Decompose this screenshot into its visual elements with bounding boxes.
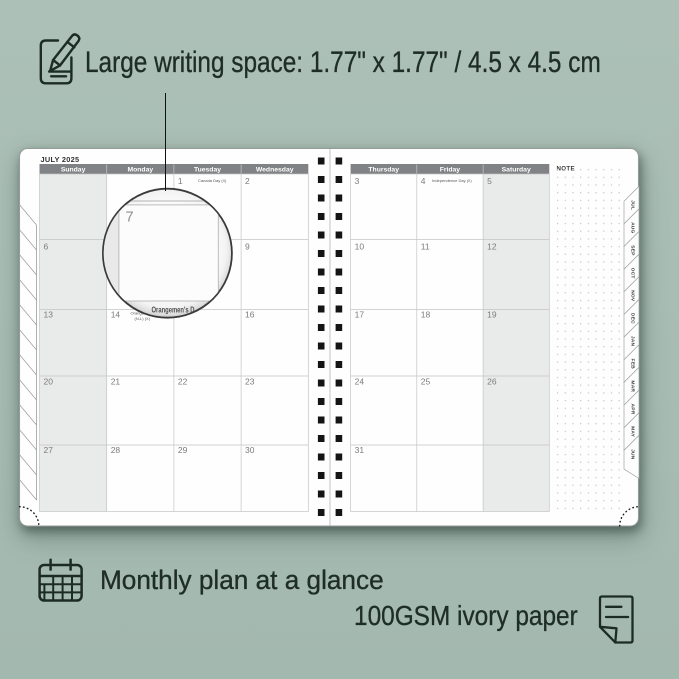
svg-text:29: 29 (178, 445, 188, 455)
svg-text:Wednesday: Wednesday (256, 166, 294, 173)
svg-text:2: 2 (245, 176, 250, 186)
svg-text:MAR: MAR (630, 380, 636, 392)
svg-text:31: 31 (355, 445, 365, 455)
svg-text:21: 21 (111, 377, 121, 387)
svg-text:28: 28 (111, 445, 121, 455)
svg-text:Independence Day (X): Independence Day (X) (432, 178, 472, 183)
svg-text:Canada Day (X): Canada Day (X) (198, 178, 227, 183)
svg-text:(N-L) (X): (N-L) (X) (135, 316, 151, 321)
svg-text:Monday: Monday (127, 166, 153, 173)
svg-text:16: 16 (245, 310, 255, 320)
svg-text:3: 3 (355, 176, 360, 186)
svg-text:9: 9 (245, 242, 250, 252)
svg-text:Sunday: Sunday (61, 166, 86, 173)
svg-text:OCT: OCT (630, 268, 636, 279)
svg-text:NOV: NOV (630, 290, 636, 302)
svg-text:17: 17 (355, 310, 365, 320)
svg-text:23: 23 (245, 377, 255, 387)
svg-text:11: 11 (421, 242, 430, 252)
svg-text:Orangemen's D: Orangemen's D (152, 306, 195, 315)
svg-text:14: 14 (111, 310, 121, 320)
svg-text:Thursday: Thursday (368, 166, 399, 173)
svg-text:5: 5 (487, 176, 492, 186)
svg-text:12: 12 (487, 242, 497, 252)
svg-text:22: 22 (178, 377, 188, 387)
svg-text:Saturday: Saturday (502, 166, 531, 173)
svg-text:JUN: JUN (630, 449, 636, 460)
svg-text:Friday: Friday (440, 166, 461, 173)
svg-text:APR: APR (630, 404, 636, 415)
svg-text:SEP: SEP (630, 245, 636, 256)
svg-text:JAN: JAN (630, 336, 636, 347)
svg-text:4: 4 (421, 176, 426, 186)
svg-text:13: 13 (44, 310, 54, 320)
svg-text:DEC: DEC (630, 313, 636, 324)
svg-text:25: 25 (421, 377, 431, 387)
svg-text:30: 30 (245, 445, 255, 455)
svg-text:FEB: FEB (630, 359, 636, 370)
svg-text:27: 27 (44, 445, 54, 455)
svg-text:Tuesday: Tuesday (194, 166, 221, 173)
svg-text:19: 19 (487, 310, 497, 320)
svg-text:JUL: JUL (630, 200, 636, 210)
svg-text:26: 26 (487, 377, 497, 387)
svg-text:JULY 2025: JULY 2025 (41, 155, 80, 164)
svg-text:10: 10 (355, 242, 365, 252)
svg-text:20: 20 (44, 377, 54, 387)
svg-text:24: 24 (355, 377, 365, 387)
svg-text:1: 1 (178, 176, 183, 186)
svg-text:18: 18 (421, 310, 431, 320)
svg-text:7: 7 (126, 210, 134, 226)
svg-text:6: 6 (44, 242, 49, 252)
svg-text:AUG: AUG (630, 222, 636, 233)
svg-text:MAY: MAY (630, 426, 636, 438)
